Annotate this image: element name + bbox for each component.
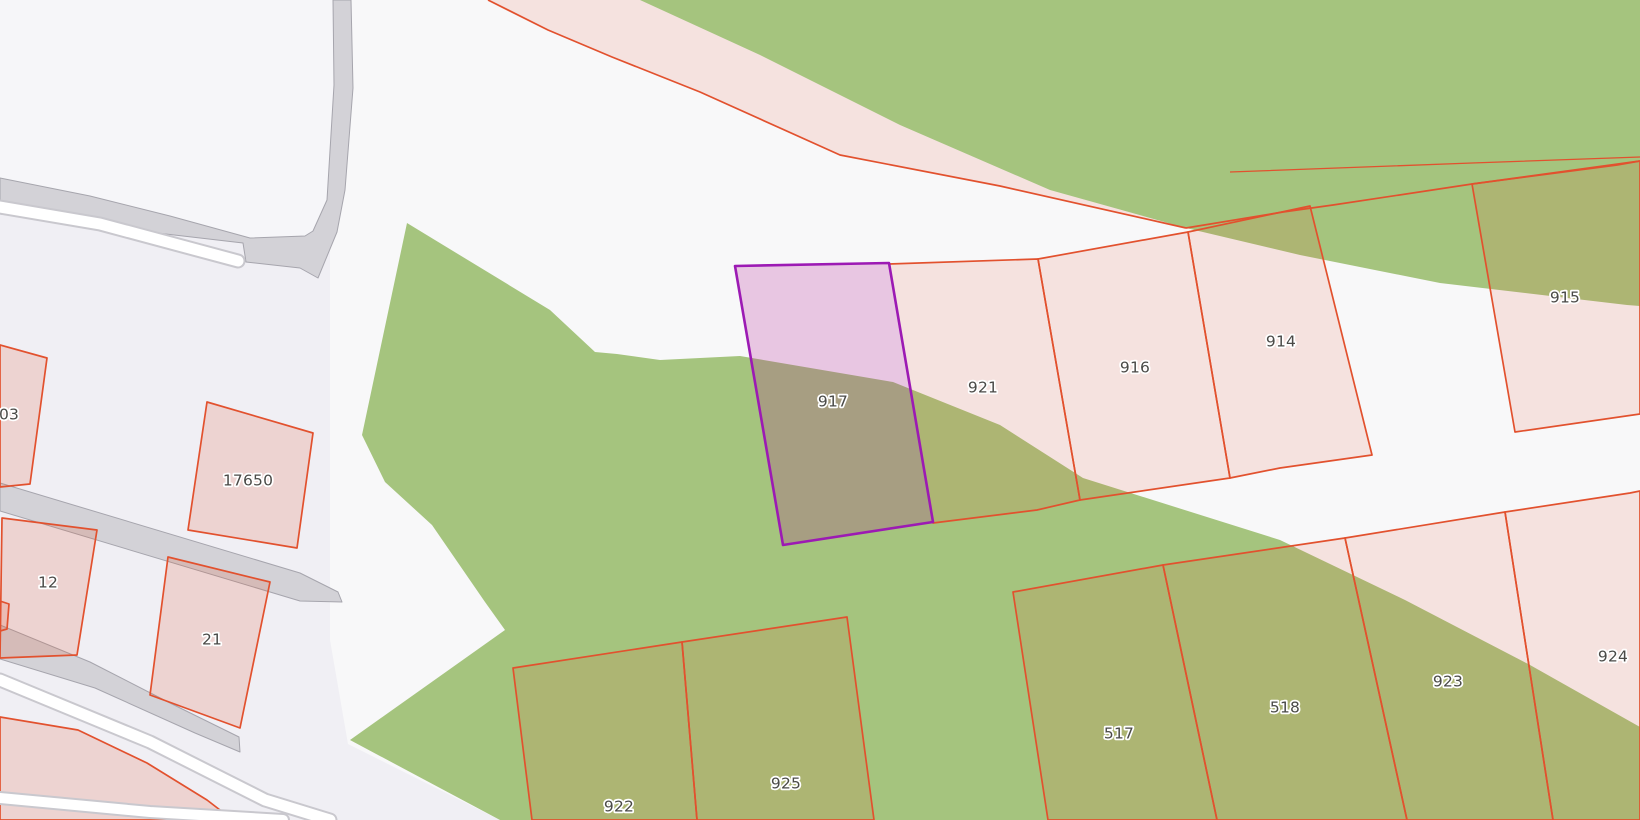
- parcel-label-925: 925: [771, 775, 801, 793]
- parcel-922[interactable]: [513, 642, 697, 820]
- parcel-label-12: 12: [38, 574, 58, 592]
- parcel-label-21: 21: [202, 631, 222, 649]
- parcel-label-923: 923: [1433, 673, 1463, 691]
- parcel-label-518: 518: [1270, 699, 1300, 717]
- parcel-label-17650: 17650: [223, 472, 273, 490]
- parcel-label-922: 922: [604, 798, 634, 816]
- parcel-stub-west[interactable]: [0, 601, 9, 631]
- map-viewport[interactable]: 0317650122191792191691491592292551751892…: [0, 0, 1640, 820]
- parcel-label-915: 915: [1550, 289, 1580, 307]
- parcel-label-921: 921: [968, 379, 998, 397]
- parcel-label-924: 924: [1598, 648, 1628, 666]
- parcel-label-517: 517: [1104, 725, 1134, 743]
- parcel-label-914: 914: [1266, 333, 1296, 351]
- parcel-label-917: 917: [818, 393, 848, 411]
- parcel-label-916: 916: [1120, 359, 1150, 377]
- map-canvas[interactable]: 0317650122191792191691491592292551751892…: [0, 0, 1640, 820]
- parcel-label-03: 03: [0, 406, 19, 424]
